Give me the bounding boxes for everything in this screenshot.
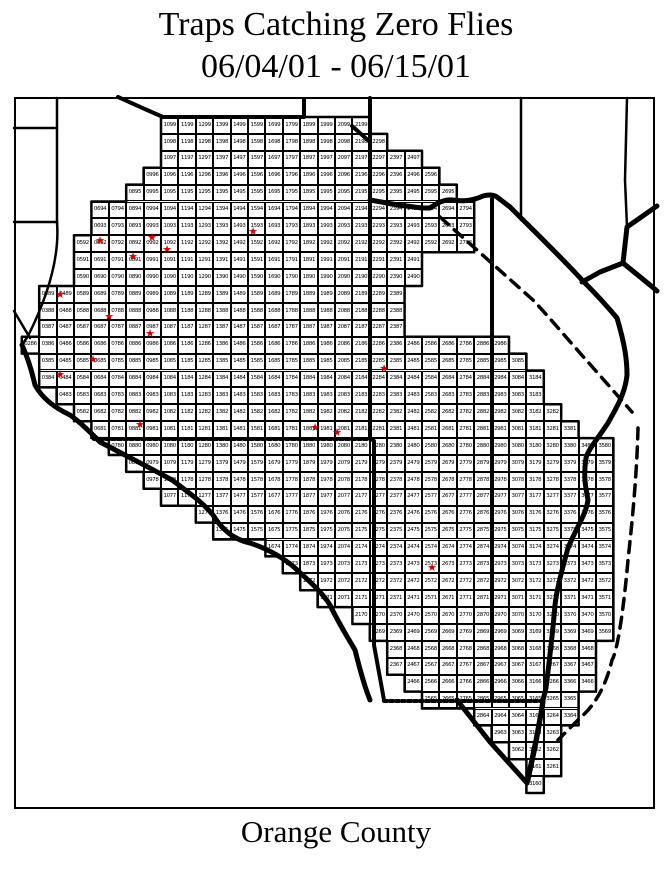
grid-cell: 3069 bbox=[509, 624, 526, 641]
grid-cell: 2296 bbox=[370, 168, 387, 185]
grid-cell: 1895 bbox=[300, 185, 317, 202]
grid-cell: 2188 bbox=[352, 303, 369, 320]
grid-cell: 1685 bbox=[265, 354, 282, 371]
grid-cell: 2177 bbox=[352, 489, 369, 506]
grid-cell: 1578 bbox=[248, 472, 265, 489]
grid-cell: 0791 bbox=[109, 252, 126, 269]
grid-cell: 1681 bbox=[265, 421, 282, 438]
grid-cell: 3367 bbox=[561, 658, 578, 675]
grid-cell: 1695 bbox=[265, 185, 282, 202]
grid-cell: 2877 bbox=[474, 489, 491, 506]
grid-cell: 3273 bbox=[544, 556, 561, 573]
grid-cell: 1389 bbox=[213, 286, 230, 303]
grid-cell: 3576 bbox=[596, 506, 613, 523]
grid-cell: 3377 bbox=[561, 489, 578, 506]
grid-cell: 3080 bbox=[509, 438, 526, 455]
grid-cell: 3166 bbox=[526, 675, 543, 692]
grid-cell: 2683 bbox=[439, 387, 456, 404]
grid-cell: 2668 bbox=[439, 641, 456, 658]
grid-cell: 3475 bbox=[579, 523, 596, 540]
grid-cell: 2982 bbox=[492, 404, 509, 421]
grid-cell: 3278 bbox=[544, 472, 561, 489]
grid-cell: 2776 bbox=[457, 506, 474, 523]
grid-cell: 1484 bbox=[231, 371, 248, 388]
grid-cell: 2775 bbox=[457, 523, 474, 540]
grid-cell: 1198 bbox=[178, 134, 195, 151]
grid-cell: 2373 bbox=[387, 556, 404, 573]
grid-cell: 1897 bbox=[300, 151, 317, 168]
grid-cell: 1793 bbox=[283, 218, 300, 235]
grid-cell: 3164 bbox=[526, 709, 543, 726]
grid-cell: 1398 bbox=[213, 134, 230, 151]
grid-cell: 2771 bbox=[457, 590, 474, 607]
grid-cell: 1284 bbox=[196, 371, 213, 388]
grid-cell: 2075 bbox=[335, 523, 352, 540]
grid-cell: 2184 bbox=[352, 371, 369, 388]
grid-cell: 2594 bbox=[422, 202, 439, 219]
grid-cell: 1180 bbox=[178, 438, 195, 455]
grid-cell: 1873 bbox=[300, 556, 317, 573]
grid-cell: 1584 bbox=[248, 371, 265, 388]
grid-cell: 1775 bbox=[283, 523, 300, 540]
grid-cell: 1686 bbox=[265, 337, 282, 354]
grid-cell: 1478 bbox=[231, 472, 248, 489]
grid-cell: 3063 bbox=[509, 725, 526, 742]
grid-cell: 0893 bbox=[126, 218, 143, 235]
grid-cell: 1680 bbox=[265, 438, 282, 455]
grid-cell: 1796 bbox=[283, 168, 300, 185]
grid-cell: 2491 bbox=[405, 252, 422, 269]
grid-cell: 2677 bbox=[439, 489, 456, 506]
grid-cell: 1387 bbox=[213, 320, 230, 337]
grid-cell: 3378 bbox=[561, 472, 578, 489]
grid-cell: 1277 bbox=[196, 489, 213, 506]
grid-cell: 2171 bbox=[352, 590, 369, 607]
grid-cell: 2679 bbox=[439, 455, 456, 472]
grid-cell: 1477 bbox=[231, 489, 248, 506]
grid-cell: 2185 bbox=[352, 354, 369, 371]
grid-cell: 1285 bbox=[196, 354, 213, 371]
grid-cell: 2290 bbox=[370, 269, 387, 286]
grid-cell: 2380 bbox=[387, 438, 404, 455]
grid-cell: 2666 bbox=[439, 675, 456, 692]
grid-cell: 0888 bbox=[126, 303, 143, 320]
grid-cell: 1898 bbox=[300, 134, 317, 151]
grid-cell: 3264 bbox=[544, 709, 561, 726]
grid-cell: 0894 bbox=[126, 202, 143, 219]
grid-cell: 3380 bbox=[561, 438, 578, 455]
grid-cell: 2975 bbox=[492, 523, 509, 540]
grid-cell: 2596 bbox=[422, 168, 439, 185]
grid-cell: 2086 bbox=[335, 337, 352, 354]
grid-cell: 2567 bbox=[422, 658, 439, 675]
grid-cell: 2784 bbox=[457, 371, 474, 388]
grid-cell: 1481 bbox=[231, 421, 248, 438]
grid-cell: 2270 bbox=[370, 607, 387, 624]
grid-cell: 3165 bbox=[526, 692, 543, 709]
grid-cell: 2175 bbox=[352, 523, 369, 540]
grid-cell: 0981 bbox=[144, 421, 161, 438]
grid-cell: 3171 bbox=[526, 590, 543, 607]
grid-cell: 1078 bbox=[161, 472, 178, 489]
grid-cell: 1876 bbox=[300, 506, 317, 523]
grid-cell: 1487 bbox=[231, 320, 248, 337]
grid-cell: 1493 bbox=[231, 218, 248, 235]
grid-cell: 2084 bbox=[335, 371, 352, 388]
grid-cell: 1986 bbox=[318, 337, 335, 354]
grid-cell: 2194 bbox=[352, 202, 369, 219]
grid-cell: 1497 bbox=[231, 151, 248, 168]
grid-cell: 2370 bbox=[387, 607, 404, 624]
grid-cell: 2972 bbox=[492, 573, 509, 590]
grid-cell: 2485 bbox=[405, 354, 422, 371]
grid-cell: 2472 bbox=[405, 573, 422, 590]
grid-cell: 2882 bbox=[474, 404, 491, 421]
grid-cell: 3082 bbox=[509, 404, 526, 421]
grid-cell: 3466 bbox=[579, 675, 596, 692]
grid-cell: 2293 bbox=[370, 218, 387, 235]
trap-star-marker: ★ bbox=[135, 419, 145, 430]
grid-cell: 2585 bbox=[422, 354, 439, 371]
grid-cell: 2073 bbox=[335, 556, 352, 573]
grid-cell: 1687 bbox=[265, 320, 282, 337]
grid-cell: 2178 bbox=[352, 472, 369, 489]
grid-cell: 1575 bbox=[248, 523, 265, 540]
grid-cell: 2395 bbox=[387, 185, 404, 202]
grid-cell: 2181 bbox=[352, 421, 369, 438]
grid-cell: 2768 bbox=[457, 641, 474, 658]
grid-cell: 2881 bbox=[474, 421, 491, 438]
grid-cell: 2676 bbox=[439, 506, 456, 523]
grid-cell: 1276 bbox=[196, 506, 213, 523]
grid-cell: 2479 bbox=[405, 455, 422, 472]
grid-cell: 2279 bbox=[370, 455, 387, 472]
grid-cell: 1879 bbox=[300, 455, 317, 472]
grid-cell: 1989 bbox=[318, 286, 335, 303]
grid-cell: 3375 bbox=[561, 523, 578, 540]
grid-cell: 3479 bbox=[579, 455, 596, 472]
grid-cell: 2186 bbox=[352, 337, 369, 354]
grid-cell: 0483 bbox=[57, 387, 74, 404]
grid-cell: 1783 bbox=[283, 387, 300, 404]
grid-cell: 0979 bbox=[144, 455, 161, 472]
grid-cell: 1781 bbox=[283, 421, 300, 438]
grid-cell: 1380 bbox=[213, 438, 230, 455]
grid-cell: 0386 bbox=[39, 337, 56, 354]
grid-cell: 2071 bbox=[335, 590, 352, 607]
grid-cell: 3368 bbox=[561, 641, 578, 658]
grid-cell: 2493 bbox=[405, 218, 422, 235]
grid-cell: 1393 bbox=[213, 218, 230, 235]
grid-cell: 3180 bbox=[526, 438, 543, 455]
grid-cell: 2968 bbox=[492, 641, 509, 658]
grid-cell: 2496 bbox=[405, 168, 422, 185]
grid-cell: 2280 bbox=[370, 438, 387, 455]
grid-cell: 1889 bbox=[300, 286, 317, 303]
grid-cell: 1283 bbox=[196, 387, 213, 404]
grid-cell: 2786 bbox=[457, 337, 474, 354]
grid-cell: 1587 bbox=[248, 320, 265, 337]
grid-cell: 2083 bbox=[335, 387, 352, 404]
grid-cell: 3268 bbox=[544, 641, 561, 658]
grid-cell: 2372 bbox=[387, 573, 404, 590]
grid-cell: 1691 bbox=[265, 252, 282, 269]
grid-cell: 1099 bbox=[161, 117, 178, 134]
grid-cell: 3477 bbox=[579, 489, 596, 506]
grid-cell: 2179 bbox=[352, 455, 369, 472]
grid-cell: 2471 bbox=[405, 590, 422, 607]
grid-cell: 1586 bbox=[248, 337, 265, 354]
grid-cell: 2974 bbox=[492, 540, 509, 557]
grid-cell: 2085 bbox=[335, 354, 352, 371]
grid-cell: 2469 bbox=[405, 624, 422, 641]
grid-cell: 2484 bbox=[405, 371, 422, 388]
grid-cell: 2965 bbox=[492, 692, 509, 709]
grid-cell: 1292 bbox=[196, 235, 213, 252]
grid-cell: 2483 bbox=[405, 387, 422, 404]
grid-cell: 2875 bbox=[474, 523, 491, 540]
grid-cell: 2287 bbox=[370, 320, 387, 337]
grid-cell: 2777 bbox=[457, 489, 474, 506]
grid-cell: 1692 bbox=[265, 235, 282, 252]
grid-cell: 2097 bbox=[335, 151, 352, 168]
grid-cell: 2393 bbox=[387, 218, 404, 235]
grid-cell: 1890 bbox=[300, 269, 317, 286]
grid-cell: 2767 bbox=[457, 658, 474, 675]
grid-cell: 2678 bbox=[439, 472, 456, 489]
grid-cell: 1298 bbox=[196, 134, 213, 151]
grid-cell: 0590 bbox=[74, 269, 91, 286]
grid-cell: 0691 bbox=[91, 252, 108, 269]
grid-cell: 0789 bbox=[109, 286, 126, 303]
grid-cell: 2693 bbox=[439, 218, 456, 235]
grid-cell: 2172 bbox=[352, 573, 369, 590]
grid-cell: 3473 bbox=[579, 556, 596, 573]
grid-cell: 1778 bbox=[283, 472, 300, 489]
grid-cell: 1295 bbox=[196, 185, 213, 202]
grid-cell: 1676 bbox=[265, 506, 282, 523]
grid-cell: 3071 bbox=[509, 590, 526, 607]
grid-cell: 0388 bbox=[39, 303, 56, 320]
grid-cell: 1982 bbox=[318, 404, 335, 421]
grid-cell: 3281 bbox=[544, 421, 561, 438]
grid-cell: 3065 bbox=[509, 692, 526, 709]
grid-cell: 1779 bbox=[283, 455, 300, 472]
grid-cell: 2183 bbox=[352, 387, 369, 404]
grid-cell: 1095 bbox=[161, 185, 178, 202]
grid-cell: 1178 bbox=[178, 472, 195, 489]
grid-cell: 3471 bbox=[579, 590, 596, 607]
grid-cell: 1595 bbox=[248, 185, 265, 202]
grid-cell: 0686 bbox=[91, 337, 108, 354]
grid-cell: 1375 bbox=[213, 523, 230, 540]
grid-cell: 3371 bbox=[561, 590, 578, 607]
grid-cell: 2980 bbox=[492, 438, 509, 455]
grid-cell: 1788 bbox=[283, 303, 300, 320]
grid-cell: 2774 bbox=[457, 540, 474, 557]
grid-cell: 1378 bbox=[213, 472, 230, 489]
grid-cell: 2874 bbox=[474, 540, 491, 557]
grid-cell: 2170 bbox=[352, 607, 369, 624]
grid-cell: 1084 bbox=[161, 371, 178, 388]
grid-cell: 2684 bbox=[439, 371, 456, 388]
grid-cell: 1382 bbox=[213, 404, 230, 421]
grid-cell: 2096 bbox=[335, 168, 352, 185]
grid-cell: 2869 bbox=[474, 624, 491, 641]
grid-cell: 3267 bbox=[544, 658, 561, 675]
grid-cell: 1080 bbox=[161, 438, 178, 455]
grid-cell: 1979 bbox=[318, 455, 335, 472]
grid-cell: 2082 bbox=[335, 404, 352, 421]
grid-cell: 2871 bbox=[474, 590, 491, 607]
grid-cell: 1085 bbox=[161, 354, 178, 371]
grid-cell: 2866 bbox=[474, 675, 491, 692]
grid-cell: 0689 bbox=[91, 286, 108, 303]
grid-cell: 0693 bbox=[91, 218, 108, 235]
grid-cell: 1590 bbox=[248, 269, 265, 286]
grid-cell: 2397 bbox=[387, 151, 404, 168]
grid-cell: 1878 bbox=[300, 472, 317, 489]
grid-cell: 2274 bbox=[370, 540, 387, 557]
grid-cell: 1984 bbox=[318, 371, 335, 388]
grid-cell: 2571 bbox=[422, 590, 439, 607]
grid-cell: 3373 bbox=[561, 556, 578, 573]
grid-cell: 1971 bbox=[318, 590, 335, 607]
grid-cell: 1288 bbox=[196, 303, 213, 320]
grid-cell: 3270 bbox=[544, 607, 561, 624]
grid-cell: 1195 bbox=[178, 185, 195, 202]
grid-cell: 2681 bbox=[439, 421, 456, 438]
grid-cell: 0895 bbox=[126, 185, 143, 202]
trap-star-marker: ★ bbox=[379, 363, 389, 374]
grid-cell: 0885 bbox=[126, 354, 143, 371]
grid-cell: 3084 bbox=[509, 371, 526, 388]
grid-cell: 3578 bbox=[596, 472, 613, 489]
grid-cell: 2673 bbox=[439, 556, 456, 573]
grid-cell: 2492 bbox=[405, 235, 422, 252]
grid-cell: 1191 bbox=[178, 252, 195, 269]
grid-cell: 3174 bbox=[526, 540, 543, 557]
grid-cell: 0586 bbox=[74, 337, 91, 354]
grid-cell: 3078 bbox=[509, 472, 526, 489]
grid-cell: 2670 bbox=[439, 607, 456, 624]
grid-cell: 1773 bbox=[283, 556, 300, 573]
grid-cell: 0985 bbox=[144, 354, 161, 371]
grid-cell: 3160 bbox=[526, 776, 543, 793]
grid-cell: 2865 bbox=[474, 692, 491, 709]
grid-cell: 2568 bbox=[422, 641, 439, 658]
grid-cell: 2986 bbox=[492, 337, 509, 354]
grid-cell: 3177 bbox=[526, 489, 543, 506]
grid-cell: 2382 bbox=[387, 404, 404, 421]
grid-cell: 1082 bbox=[161, 404, 178, 421]
grid-cell: 2872 bbox=[474, 573, 491, 590]
grid-cell: 2883 bbox=[474, 387, 491, 404]
grid-cell: 2595 bbox=[422, 185, 439, 202]
grid-cell: 1774 bbox=[283, 540, 300, 557]
grid-cell: 1486 bbox=[231, 337, 248, 354]
grid-cell: 2474 bbox=[405, 540, 422, 557]
grid-cell: 2074 bbox=[335, 540, 352, 557]
grid-cell: 0385 bbox=[39, 354, 56, 371]
grid-cell: 1596 bbox=[248, 168, 265, 185]
grid-cell: 3075 bbox=[509, 523, 526, 540]
grid-cell: 1297 bbox=[196, 151, 213, 168]
grid-cell: 1582 bbox=[248, 404, 265, 421]
grid-cell: 3167 bbox=[526, 658, 543, 675]
grid-cell: 3077 bbox=[509, 489, 526, 506]
grid-cell: 3474 bbox=[579, 540, 596, 557]
grid-cell: 2273 bbox=[370, 556, 387, 573]
grid-cell: 0694 bbox=[91, 202, 108, 219]
grid-cell: 3183 bbox=[526, 387, 543, 404]
grid-cell: 0980 bbox=[144, 438, 161, 455]
grid-cell: 2292 bbox=[370, 235, 387, 252]
grid-cell: 2396 bbox=[387, 168, 404, 185]
grid-cell: 0684 bbox=[91, 371, 108, 388]
grid-cell: 1077 bbox=[161, 489, 178, 506]
grid-cell: 1677 bbox=[265, 489, 282, 506]
grid-cell: 3282 bbox=[544, 404, 561, 421]
grid-cell: 2879 bbox=[474, 455, 491, 472]
grid-cell: 2976 bbox=[492, 506, 509, 523]
grid-cell: 0884 bbox=[126, 371, 143, 388]
grid-cell: 1678 bbox=[265, 472, 282, 489]
grid-cell: 2098 bbox=[335, 134, 352, 151]
grid-cell: 1189 bbox=[178, 286, 195, 303]
grid-cell: 2475 bbox=[405, 523, 422, 540]
grid-cell: 1391 bbox=[213, 252, 230, 269]
grid-cell: 2685 bbox=[439, 354, 456, 371]
grid-cell: 0988 bbox=[144, 303, 161, 320]
grid-cell: 2089 bbox=[335, 286, 352, 303]
grid-cell: 1494 bbox=[231, 202, 248, 219]
grid-cell: 3064 bbox=[509, 709, 526, 726]
grid-cell: 3070 bbox=[509, 607, 526, 624]
grid-cell: 0389 bbox=[39, 286, 56, 303]
grid-cell: 0790 bbox=[109, 269, 126, 286]
grid-cell: 1787 bbox=[283, 320, 300, 337]
grid-cell: 1488 bbox=[231, 303, 248, 320]
grid-cell: 1280 bbox=[196, 438, 213, 455]
grid-cell: 2383 bbox=[387, 387, 404, 404]
grid-cell: 1379 bbox=[213, 455, 230, 472]
grid-cell: 1282 bbox=[196, 404, 213, 421]
grid-cell: 1697 bbox=[265, 151, 282, 168]
grid-cell: 0387 bbox=[39, 320, 56, 337]
grid-cell: 2569 bbox=[422, 624, 439, 641]
grid-cell: 3580 bbox=[596, 438, 613, 455]
grid-cell: 1490 bbox=[231, 269, 248, 286]
grid-cell: 1381 bbox=[213, 421, 230, 438]
grid-cell: 2476 bbox=[405, 506, 422, 523]
grid-cell: 0792 bbox=[109, 235, 126, 252]
grid-cell: 1894 bbox=[300, 202, 317, 219]
grid-cell: 0995 bbox=[144, 185, 161, 202]
grid-cell: 2088 bbox=[335, 303, 352, 320]
grid-cell: 1880 bbox=[300, 438, 317, 455]
grid-cell: 1098 bbox=[161, 134, 178, 151]
grid-cell: 1394 bbox=[213, 202, 230, 219]
grid-cell: 2779 bbox=[457, 455, 474, 472]
trap-star-marker: ★ bbox=[104, 311, 114, 322]
grid-cell: 2675 bbox=[439, 523, 456, 540]
grid-cell: 2385 bbox=[387, 354, 404, 371]
grid-cell: 1598 bbox=[248, 134, 265, 151]
grid-cell: 1675 bbox=[265, 523, 282, 540]
grid-cell: 2384 bbox=[387, 371, 404, 388]
grid-cell: 3574 bbox=[596, 540, 613, 557]
